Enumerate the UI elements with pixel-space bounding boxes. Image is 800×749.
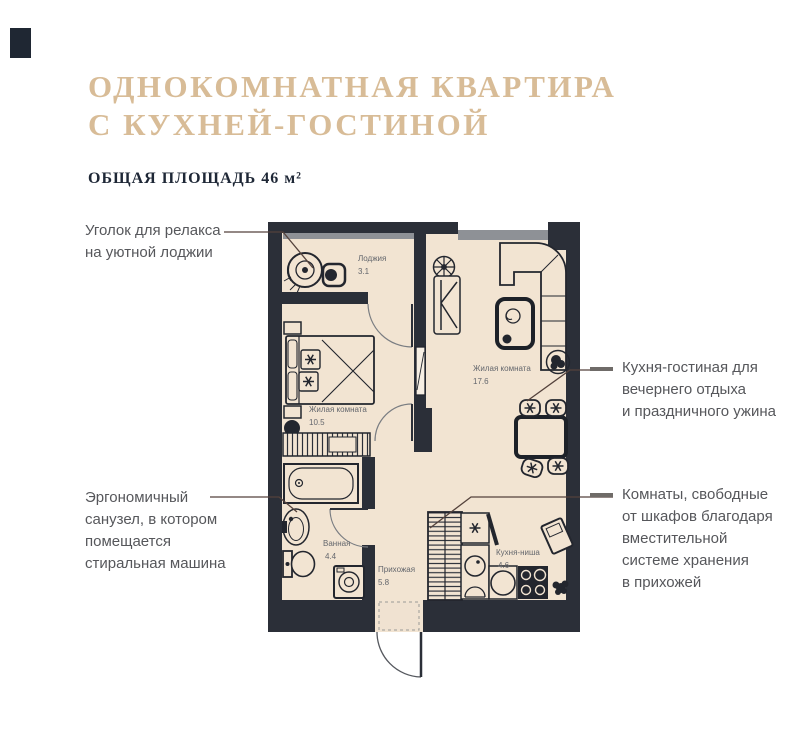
wall-bedroom-living-lower: [414, 408, 432, 452]
coffee-table-icon: [497, 299, 533, 348]
room-area: 10.5: [309, 418, 325, 427]
callout-stubs: [590, 367, 613, 497]
room-label: Кухня-ниша: [496, 548, 540, 557]
wall-bottom: [268, 600, 580, 632]
kitchen-cabinet-icon: [461, 513, 489, 543]
mirror-icon: [416, 347, 425, 395]
room-area: 4.4: [325, 552, 337, 561]
room-label: Жилая комната: [473, 364, 531, 373]
side-table-icon: [323, 264, 345, 286]
entrance-threshold: [379, 602, 419, 630]
dining-table-icon: [516, 417, 566, 457]
entrance: [375, 600, 423, 677]
wall-left: [268, 222, 282, 632]
wall-right: [566, 222, 580, 632]
dining-chair-icon: [548, 458, 568, 474]
room-label: Ванная: [323, 539, 350, 548]
wall-bathroom-upper: [362, 457, 375, 509]
callout-stub: [590, 493, 613, 497]
loggia-glazing: [283, 233, 414, 239]
stove-icon: [518, 566, 548, 599]
room-label: Прихожая: [378, 565, 415, 574]
toilet-icon: [283, 551, 315, 577]
callout-stub: [590, 367, 613, 371]
kitchen-tall-unit-icon: [461, 545, 489, 599]
dining-chair-icon: [546, 400, 566, 416]
wardrobe-icon: [283, 433, 370, 456]
living-window: [458, 230, 548, 240]
room-label: Лоджия: [358, 254, 386, 263]
wall-loggia-top: [268, 222, 414, 233]
tv-console-icon: [434, 276, 460, 334]
bed-icon: [286, 336, 374, 404]
bathtub-icon: [284, 464, 358, 503]
entrance-door-arc: [377, 632, 421, 677]
room-label: Жилая комната: [309, 405, 367, 414]
washbasin-icon: [282, 509, 309, 545]
kitchen-sink-icon: [489, 566, 517, 599]
room-area: 5.8: [378, 578, 390, 587]
page: ОДНОКОМНАТНАЯ КВАРТИРА С КУХНЕЙ-ГОСТИНОЙ…: [0, 0, 800, 749]
room-area: 3.1: [358, 267, 370, 276]
room-area: 4.6: [498, 561, 510, 570]
wall-loggia-bedroom: [282, 292, 368, 304]
dining-chair-icon: [520, 400, 540, 416]
floor-plan: Лоджия 3.1 Жилая комната 17.6 Жилая комн…: [0, 0, 800, 749]
room-area: 17.6: [473, 377, 489, 386]
washing-machine-icon: [334, 566, 364, 598]
ceiling-fan-icon: [434, 257, 455, 278]
